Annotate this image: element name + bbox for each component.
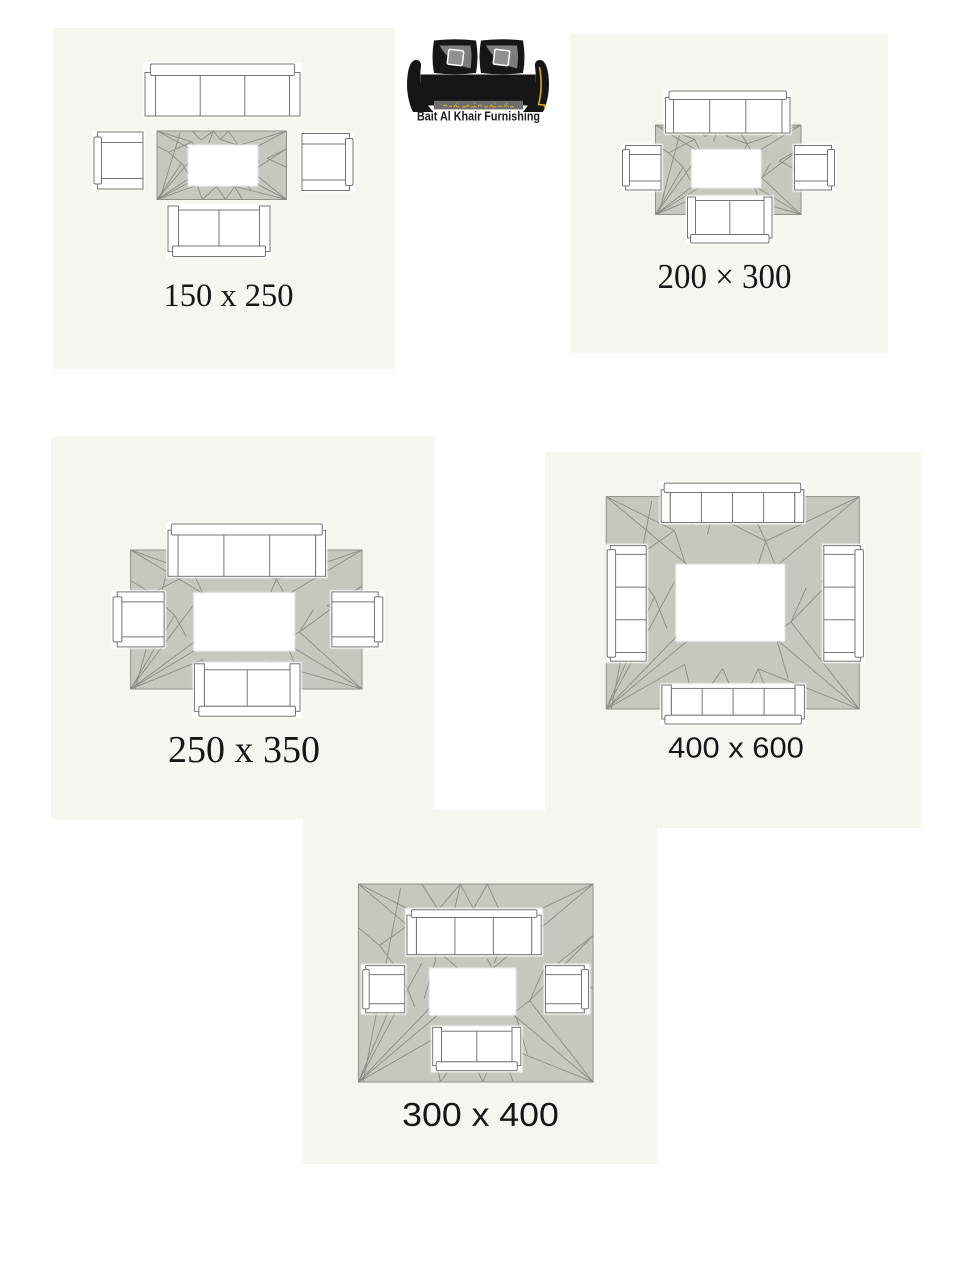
svg-text:400 x 600: 400 x 600 [668, 732, 804, 764]
svg-text:200 × 300: 200 × 300 [658, 257, 792, 296]
svg-text:Bait Al Khair Furnishing: Bait Al Khair Furnishing [417, 110, 540, 124]
svg-text:150 x 250: 150 x 250 [164, 278, 294, 314]
svg-text:250 x 350: 250 x 350 [168, 729, 320, 771]
svg-text:300 x 400: 300 x 400 [402, 1096, 559, 1133]
